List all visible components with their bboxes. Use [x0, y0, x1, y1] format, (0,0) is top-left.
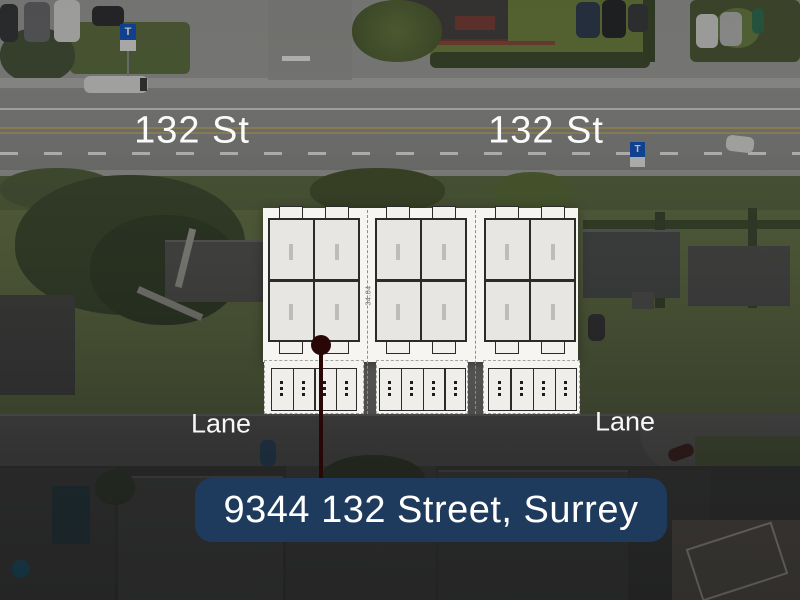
plan-unit-label-mark [505, 304, 509, 320]
plan-garage-door-mark [454, 381, 457, 397]
street-label-132-st-right: 132 St [488, 110, 604, 153]
plan-porch-bottom [495, 341, 519, 354]
plan-garage-bay-divider [510, 368, 512, 411]
plan-garage-bay-divider [314, 368, 316, 411]
address-banner: 9344 132 Street, Surrey [195, 478, 667, 542]
plan-garage-door-mark [345, 381, 348, 397]
house-porch-roof [455, 16, 495, 30]
white-van [725, 134, 755, 153]
plan-garage-door-mark [280, 381, 283, 397]
plan-porch-bottom [432, 341, 456, 354]
plan-unit-label-mark [442, 244, 446, 260]
plan-party-wall-horizontal [484, 279, 576, 282]
transit-stop-sign: T [120, 24, 136, 40]
house-roof [688, 246, 790, 306]
parked-car [54, 0, 80, 42]
plan-garage-door-mark [432, 381, 435, 397]
parked-car [576, 2, 600, 38]
plan-porch-top [386, 206, 410, 219]
parked-car [588, 314, 605, 341]
house-roof [583, 230, 680, 298]
road-center-line [0, 132, 800, 134]
tree-canopy [352, 0, 442, 62]
plan-parcel-divider-line [367, 210, 368, 414]
plan-garage-bay-divider [533, 368, 535, 411]
plan-party-wall-horizontal [375, 279, 467, 282]
tree-canopy [95, 470, 135, 505]
plan-unit-label-mark [505, 244, 509, 260]
side-street [268, 0, 352, 80]
parked-car [602, 0, 626, 38]
plan-garage-door-mark [323, 381, 326, 397]
plan-garage-door-mark [564, 381, 567, 397]
plan-party-wall-horizontal [268, 279, 360, 282]
parked-car [628, 4, 648, 32]
plan-unit-label-mark [551, 244, 555, 260]
address-banner-text: 9344 132 Street, Surrey [224, 489, 639, 532]
parked-car [92, 6, 124, 26]
plan-unit-label-mark [396, 304, 400, 320]
hedge-row [430, 52, 650, 68]
plan-garage-bay-divider [555, 368, 557, 411]
plan-garage-door-mark [302, 381, 305, 397]
plan-porch-bottom [386, 341, 410, 354]
transit-stop-sign: T [630, 142, 645, 157]
location-marker-line [319, 345, 323, 480]
plan-garage-door-mark [498, 381, 501, 397]
plan-unit-label-mark [289, 244, 293, 260]
plan-garage-bay-divider [336, 368, 338, 411]
plan-unit-label-mark [335, 304, 339, 320]
hedge-row [583, 220, 800, 229]
bus [84, 76, 148, 93]
lane-label-left: Lane [191, 409, 251, 440]
red-fence [420, 41, 555, 45]
teal-structure [52, 486, 90, 544]
plan-unit-label-mark [396, 244, 400, 260]
plan-parcel-divider-line [475, 210, 476, 414]
site-plan-overlay: 34.04 [263, 208, 578, 414]
plan-garage-bay-divider [293, 368, 295, 411]
aerial-photo-canvas: T T 34.04 9344 132 Str [0, 0, 800, 600]
road-lane-dashes [0, 152, 800, 155]
plan-porch-top [279, 206, 303, 219]
plan-porch-top [325, 206, 349, 219]
plan-porch-top [541, 206, 565, 219]
teal-structure [12, 560, 30, 578]
plan-unit-label-mark [442, 304, 446, 320]
plan-unit-label-mark [289, 304, 293, 320]
plan-porch-top [432, 206, 456, 219]
parked-car [24, 2, 50, 42]
parked-car [696, 14, 718, 48]
plan-porch-bottom [541, 341, 565, 354]
plan-garage-bay-divider [401, 368, 403, 411]
plan-garage-bay-divider [423, 368, 425, 411]
house-roof [0, 295, 75, 395]
plan-unit-label-mark [551, 304, 555, 320]
transit-sign-panel [630, 157, 645, 167]
parked-car [260, 440, 276, 466]
road-center-line [0, 127, 800, 129]
garbage-bins [752, 8, 764, 34]
bus-windshield [140, 78, 147, 91]
lane-label-right: Lane [595, 407, 655, 438]
plan-garage-door-mark [410, 381, 413, 397]
road-edge-line [0, 108, 800, 110]
plan-porch-top [495, 206, 519, 219]
plan-garage-door-mark [520, 381, 523, 397]
parked-car [0, 4, 18, 42]
plan-unit-label-mark [335, 244, 339, 260]
plan-garage-bay-divider [444, 368, 446, 411]
parked-car [720, 12, 742, 46]
shed-roof [632, 292, 654, 309]
plan-garage-door-mark [388, 381, 391, 397]
stop-bar-road-marking [282, 56, 310, 61]
transit-sign-panel [120, 40, 136, 51]
plan-garage-door-mark [542, 381, 545, 397]
street-label-132-st-left: 132 St [134, 110, 250, 153]
plan-porch-bottom [279, 341, 303, 354]
